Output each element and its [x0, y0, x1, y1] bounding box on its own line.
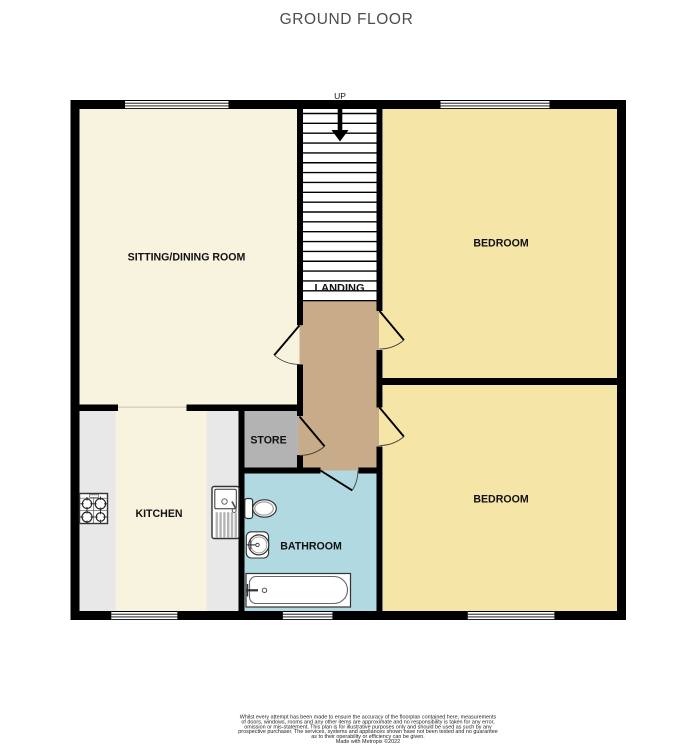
svg-text:BEDROOM: BEDROOM	[473, 238, 528, 250]
svg-text:Made with Metropix ©2022: Made with Metropix ©2022	[336, 738, 400, 745]
svg-text:LANDING: LANDING	[314, 283, 364, 295]
svg-text:GROUND FLOOR: GROUND FLOOR	[280, 11, 414, 28]
svg-text:BATHROOM: BATHROOM	[280, 541, 342, 553]
svg-text:SITTING/DINING ROOM: SITTING/DINING ROOM	[128, 252, 246, 264]
svg-text:BEDROOM: BEDROOM	[473, 494, 528, 506]
svg-text:KITCHEN: KITCHEN	[135, 508, 182, 520]
svg-text:UP: UP	[334, 91, 346, 101]
svg-text:STORE: STORE	[250, 435, 286, 447]
